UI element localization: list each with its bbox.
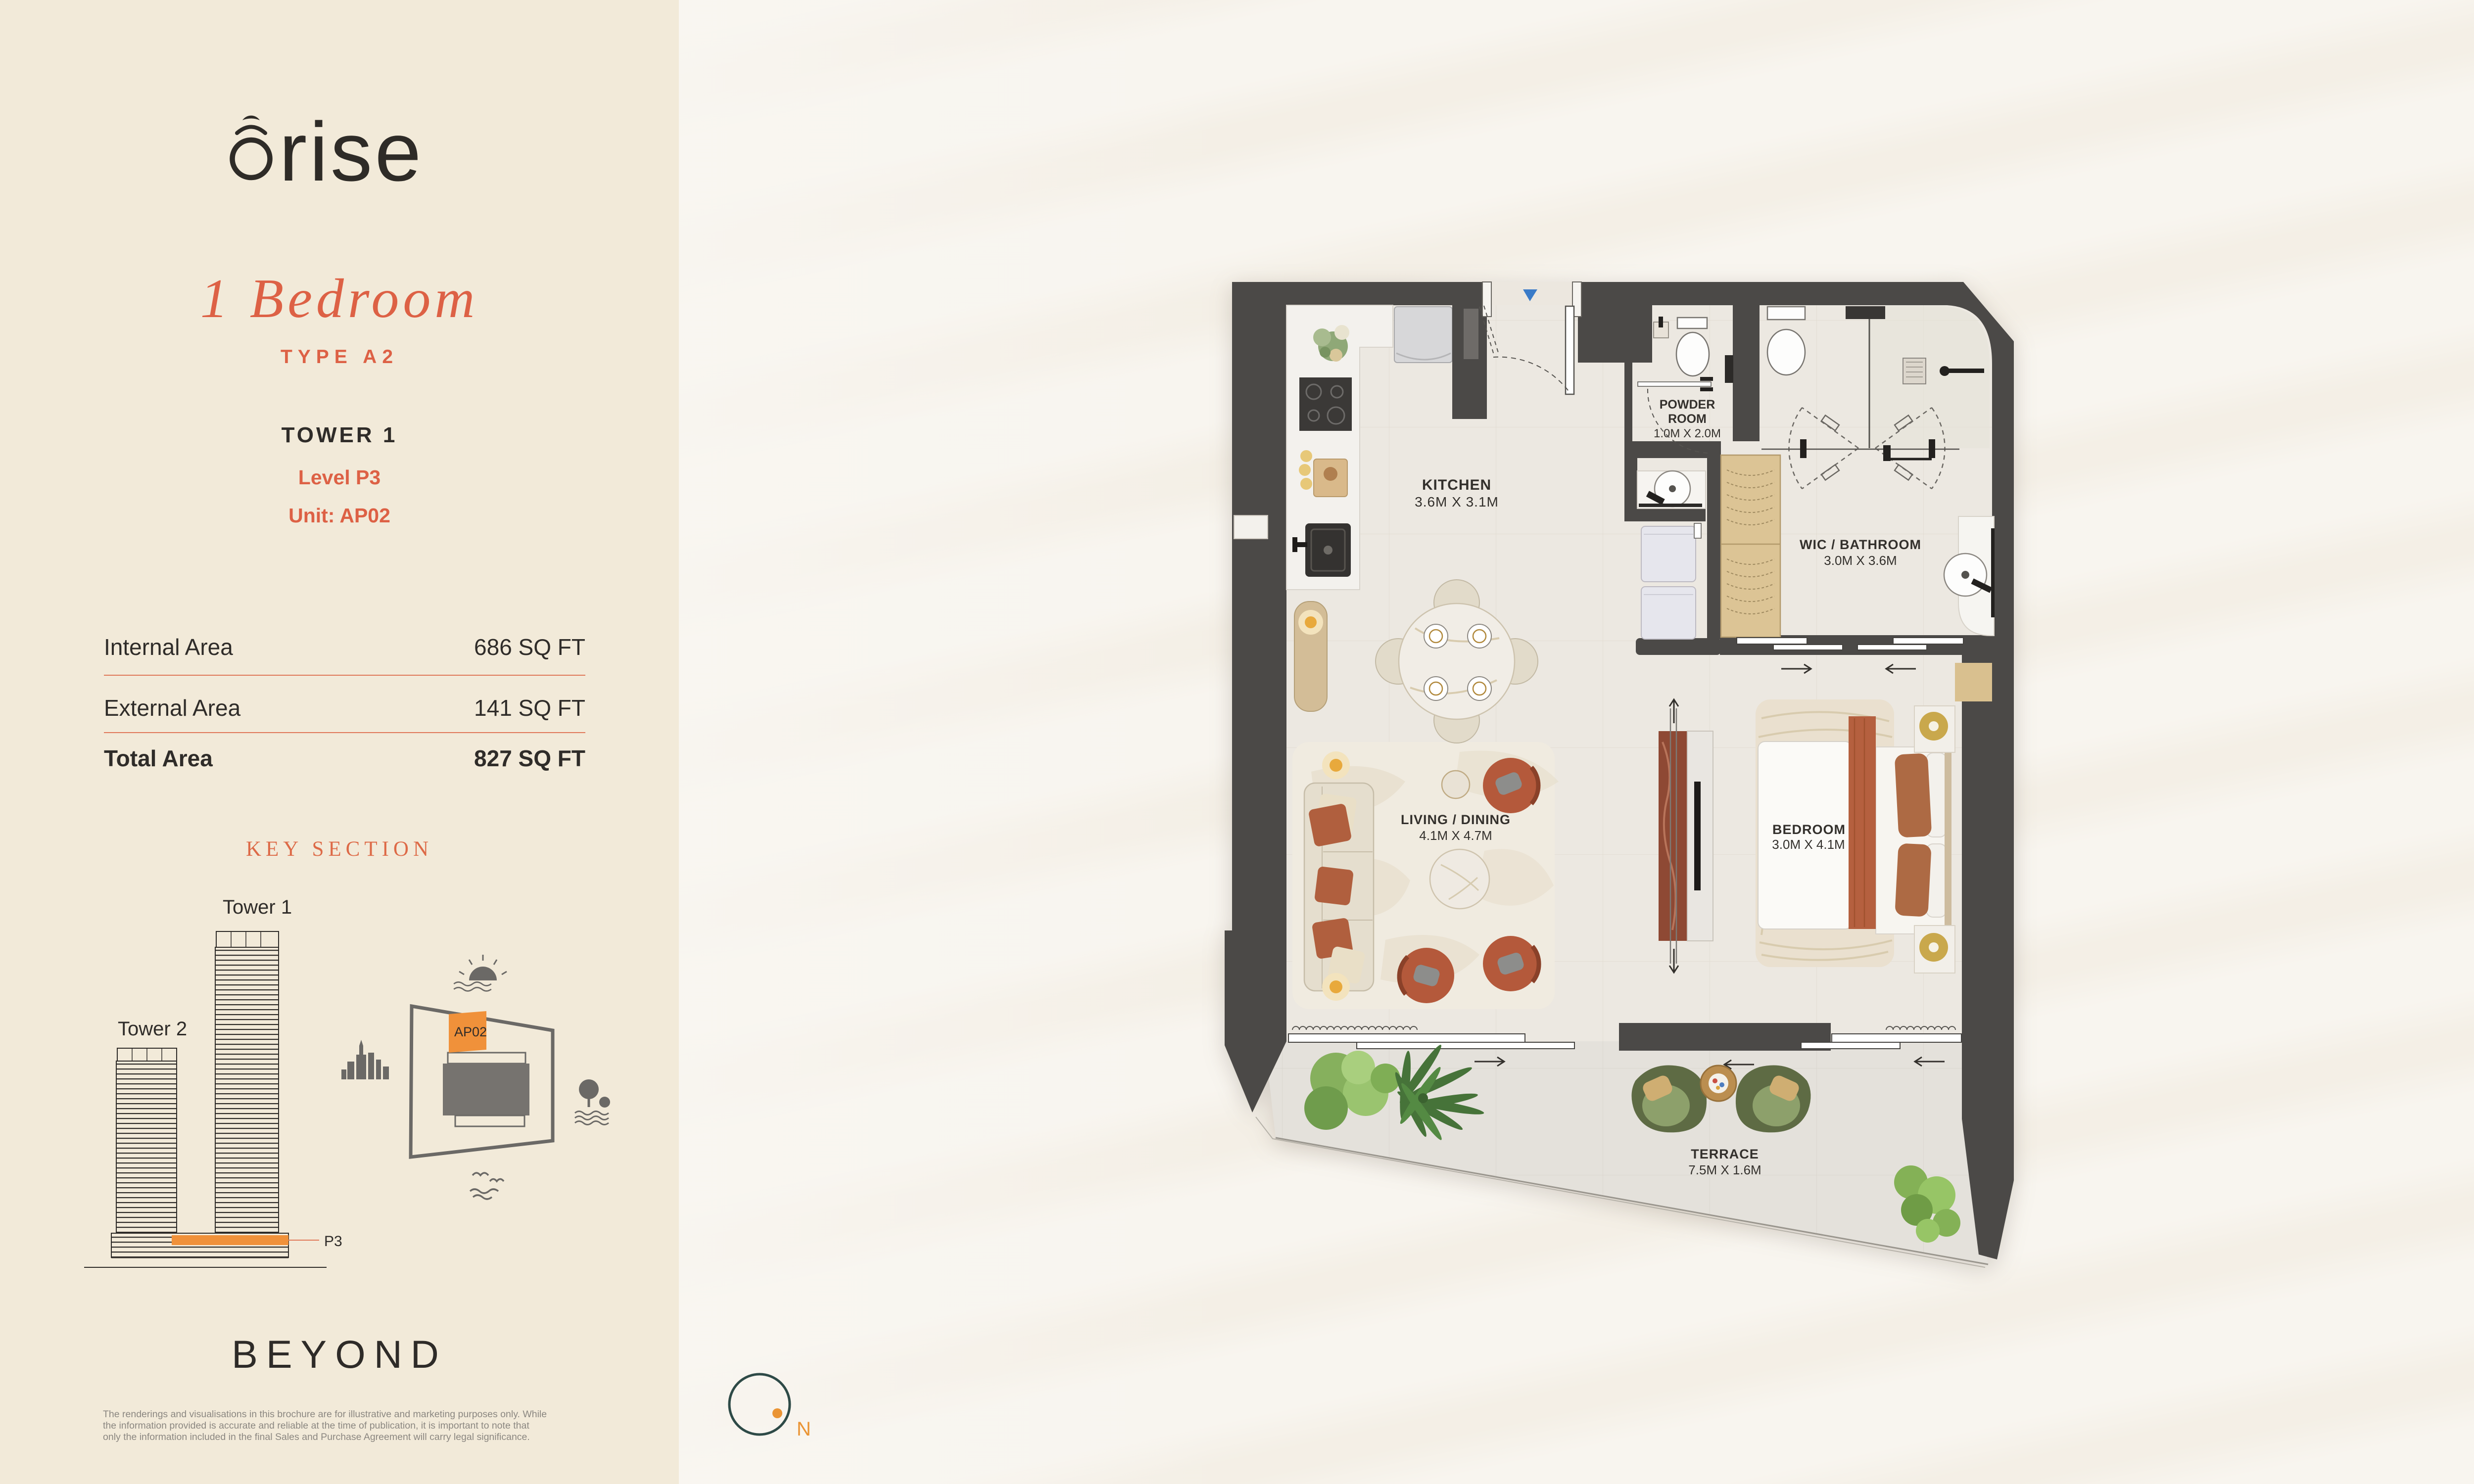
svg-text:P3: P3 <box>324 1233 342 1250</box>
svg-text:KITCHEN: KITCHEN <box>1422 477 1491 493</box>
svg-text:TERRACE: TERRACE <box>1691 1147 1759 1161</box>
svg-text:7.5M X 1.6M: 7.5M X 1.6M <box>1688 1162 1761 1177</box>
svg-text:ROOM: ROOM <box>1668 412 1707 426</box>
svg-text:3.0M X 3.6M: 3.0M X 3.6M <box>1824 553 1897 568</box>
svg-text:3.6M X 3.1M: 3.6M X 3.1M <box>1415 494 1499 510</box>
svg-text:Tower 2: Tower 2 <box>118 1018 187 1040</box>
svg-text:BEDROOM: BEDROOM <box>1772 822 1846 837</box>
svg-text:rise: rise <box>279 105 424 193</box>
svg-text:LIVING / DINING: LIVING / DINING <box>1401 812 1511 827</box>
svg-text:AP02: AP02 <box>454 1024 487 1039</box>
svg-text:N: N <box>797 1418 811 1440</box>
svg-text:POWDER: POWDER <box>1660 398 1715 412</box>
svg-text:4.1M X 4.7M: 4.1M X 4.7M <box>1419 828 1492 843</box>
svg-text:3.0M X 4.1M: 3.0M X 4.1M <box>1772 837 1845 852</box>
svg-text:Tower 1: Tower 1 <box>223 896 292 918</box>
svg-text:1.0M X 2.0M: 1.0M X 2.0M <box>1654 427 1721 440</box>
svg-text:WIC / BATHROOM: WIC / BATHROOM <box>1800 537 1921 552</box>
